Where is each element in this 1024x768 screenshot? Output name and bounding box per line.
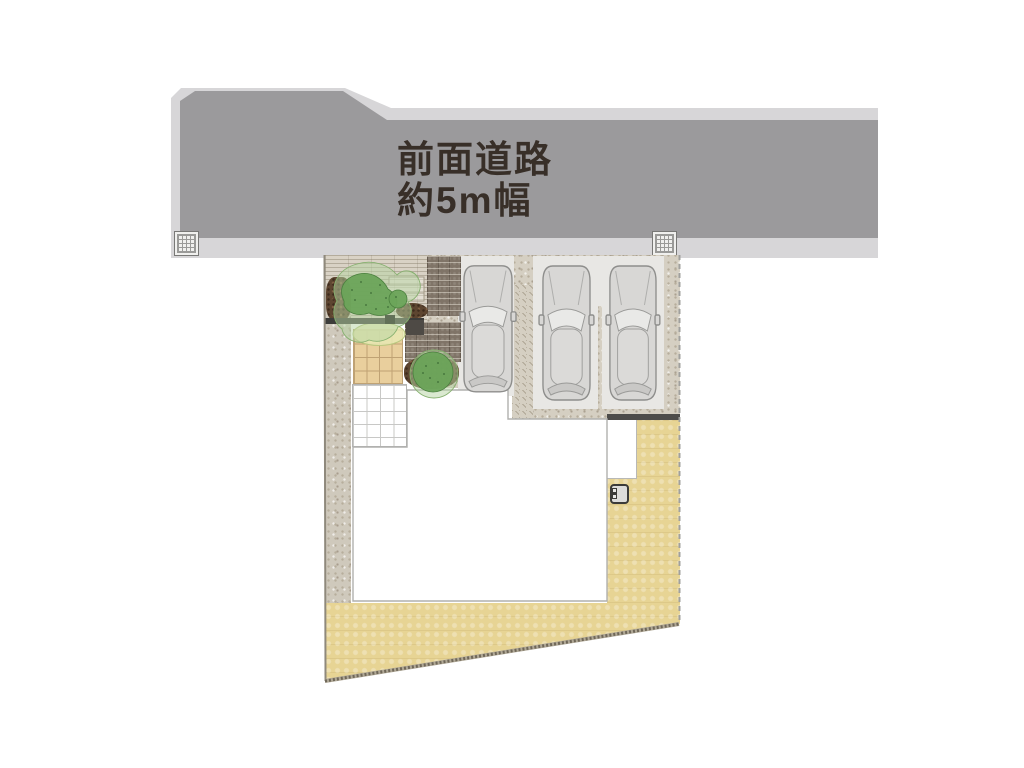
car-3 — [606, 266, 660, 400]
boundary-left — [325, 255, 326, 681]
gate-pillar — [406, 320, 424, 335]
car-1 — [460, 266, 516, 392]
small-tree — [410, 350, 458, 398]
site-plan-canvas: 前面道路 約5m幅 — [0, 0, 1024, 768]
plan-overlay — [0, 0, 1024, 768]
car-2 — [539, 266, 594, 400]
house-footprint — [353, 390, 607, 601]
